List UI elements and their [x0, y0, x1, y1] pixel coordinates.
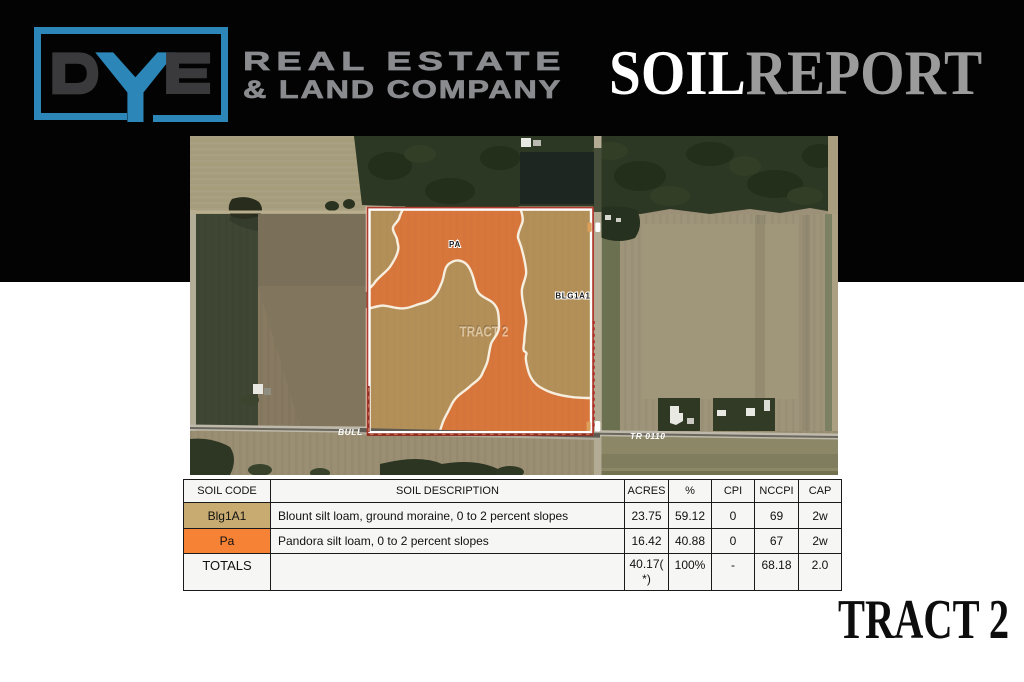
- svg-text:TR 0110: TR 0110: [630, 431, 665, 441]
- svg-text:TRACT 2: TRACT 2: [460, 323, 509, 340]
- svg-text:BULL: BULL: [338, 427, 363, 437]
- svg-text:BLG1A1: BLG1A1: [555, 292, 590, 301]
- svg-text:PA: PA: [449, 240, 461, 249]
